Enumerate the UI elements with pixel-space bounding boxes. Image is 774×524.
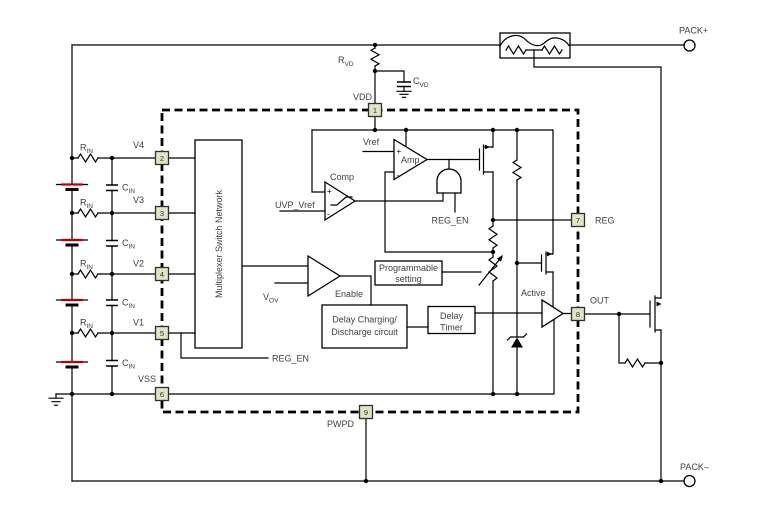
cin-label: CIN bbox=[122, 298, 135, 311]
pin-number: 6 bbox=[160, 390, 164, 399]
rin-label: RIN bbox=[80, 143, 93, 156]
fuse-element bbox=[500, 35, 569, 46]
input-filter-network bbox=[49, 154, 156, 405]
mux-label: Multiplexer Switch Network bbox=[214, 189, 224, 298]
rvd-label: RVD bbox=[338, 55, 354, 68]
ground-icon bbox=[397, 91, 411, 97]
pin-number: 5 bbox=[160, 329, 164, 338]
reg-en-gate-label: REG_EN bbox=[431, 216, 468, 226]
v3-pin-label: V3 bbox=[133, 195, 144, 205]
amp-plus-sign: + bbox=[397, 147, 402, 156]
vov-label: VOV bbox=[263, 292, 279, 305]
cvd-capacitor bbox=[375, 71, 411, 97]
battery-cell bbox=[57, 362, 88, 367]
mosfet-arrow-icon bbox=[485, 145, 490, 150]
v1-pin-label: V1 bbox=[133, 318, 144, 328]
pin-number: 2 bbox=[160, 154, 164, 163]
delay-timer-line1: Delay bbox=[440, 311, 464, 321]
thermal-fuse bbox=[500, 33, 661, 298]
pack-plus-label: PACK+ bbox=[679, 26, 708, 36]
gate-pulldown-resistor bbox=[625, 359, 645, 367]
pack-minus-label: PACK– bbox=[680, 462, 709, 472]
ground-icon bbox=[49, 394, 63, 405]
pass-mosfet bbox=[480, 145, 494, 174]
programmable-potentiometer bbox=[479, 255, 503, 285]
labels: PACK+ PACK– RVD CVD VDD V4 V3 V2 V1 VSS … bbox=[80, 26, 709, 473]
ic-internals bbox=[169, 128, 572, 396]
enable-label: Enable bbox=[335, 289, 363, 299]
reg-pin-label: REG bbox=[595, 216, 615, 226]
zener-diode bbox=[508, 334, 527, 394]
pin-number: 9 bbox=[364, 408, 368, 417]
pin-3-v3: 3 bbox=[156, 207, 169, 220]
cvd-label: CVD bbox=[413, 76, 429, 89]
discharge-mosfet bbox=[650, 296, 662, 332]
uvp-vref-label: UVP_Vref bbox=[275, 200, 315, 210]
bias-resistor bbox=[513, 160, 521, 180]
cin-label: CIN bbox=[122, 238, 135, 251]
rin-label: RIN bbox=[80, 318, 93, 331]
battery-cell bbox=[57, 240, 88, 245]
pin-number: 8 bbox=[576, 310, 580, 319]
ic-boundary bbox=[162, 110, 578, 412]
mosfet-arrow-icon bbox=[547, 252, 552, 257]
cin-label: CIN bbox=[122, 183, 135, 196]
amp-minus-sign: - bbox=[397, 171, 400, 180]
fuse-heater-resistor bbox=[506, 46, 526, 54]
battery-protection-schematic: 1 2 3 4 5 6 7 8 bbox=[0, 0, 774, 524]
vref-label: Vref bbox=[363, 137, 380, 147]
v4-pin-label: V4 bbox=[133, 140, 144, 150]
rin-resistor bbox=[78, 154, 98, 162]
pin-6-vss: 6 bbox=[156, 388, 169, 401]
output-stage-mosfet bbox=[542, 252, 554, 274]
programmable-line1: Programmable bbox=[379, 263, 438, 273]
rin-resistor bbox=[78, 270, 98, 278]
programmable-line2: setting bbox=[395, 274, 422, 284]
pin-2-v4: 2 bbox=[156, 152, 169, 165]
battery-cell bbox=[57, 185, 88, 190]
comp-label: Comp bbox=[330, 172, 354, 182]
v2-pin-label: V2 bbox=[133, 259, 144, 269]
rin-label: RIN bbox=[80, 198, 93, 211]
fuse-heater-resistor bbox=[542, 46, 562, 54]
comp-minus-sign: - bbox=[327, 210, 330, 219]
reg-en-tap-wire bbox=[181, 333, 268, 358]
rin-label: RIN bbox=[80, 259, 93, 272]
pin-8-out: 8 bbox=[572, 308, 585, 321]
reg-en-tap-label: REG_EN bbox=[272, 354, 309, 364]
vdd-pin-label: VDD bbox=[353, 92, 373, 102]
delay-circuit-line1: Delay Charging/ bbox=[332, 315, 397, 325]
rvd-resistor bbox=[371, 48, 379, 66]
delay-circuit-line2: Discharge circuit bbox=[331, 327, 398, 337]
pack-plus-terminal bbox=[684, 40, 695, 51]
vss-pin-label: VSS bbox=[138, 374, 156, 384]
rin-resistor bbox=[78, 329, 98, 337]
cin-label: CIN bbox=[122, 358, 135, 371]
and-gate bbox=[437, 160, 461, 213]
active-label: Active bbox=[521, 288, 546, 298]
top-supply bbox=[72, 33, 695, 298]
pwpd-pin-label: PWPD bbox=[327, 419, 355, 429]
pin-1-vdd: 1 bbox=[369, 104, 382, 117]
divider-resistor bbox=[489, 226, 497, 248]
mosfet-arrow-icon bbox=[657, 302, 662, 307]
pin-number: 4 bbox=[160, 270, 164, 279]
battery-cell bbox=[57, 300, 88, 305]
amp-label: Amp bbox=[401, 155, 420, 165]
pin-9-pwpd: 9 bbox=[360, 406, 373, 419]
rin-resistor bbox=[78, 209, 98, 217]
pin-number: 3 bbox=[160, 209, 164, 218]
delay-timer-line2: Timer bbox=[440, 323, 463, 333]
amp-feedback-wire bbox=[385, 172, 493, 252]
pin-7-reg: 7 bbox=[572, 214, 585, 227]
comp-plus-sign: + bbox=[327, 187, 332, 196]
pin-4-v2: 4 bbox=[156, 268, 169, 281]
pack-minus-terminal bbox=[684, 476, 695, 487]
pin-5-v1: 5 bbox=[156, 327, 169, 340]
pin-number: 7 bbox=[576, 216, 580, 225]
pin-number: 1 bbox=[373, 106, 377, 115]
out-pin-label: OUT bbox=[590, 296, 610, 306]
